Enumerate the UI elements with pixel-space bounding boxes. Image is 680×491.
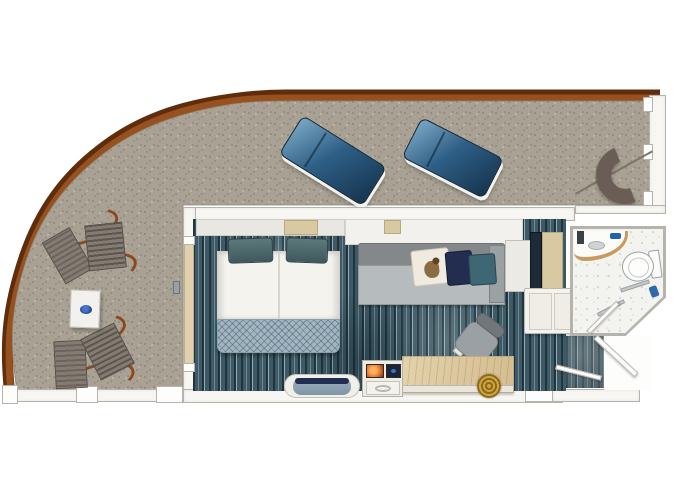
bed-runner-blanket xyxy=(217,319,340,353)
tray-item xyxy=(391,369,396,373)
balcony-side-table xyxy=(69,289,100,328)
dark-tray xyxy=(386,364,401,378)
drawer-handle xyxy=(375,385,391,392)
blue-towel xyxy=(610,233,621,239)
side-counter xyxy=(505,240,531,292)
sill-shelf xyxy=(384,220,401,234)
desk xyxy=(402,356,514,393)
tv-screen xyxy=(366,364,384,378)
minibar-cabinet xyxy=(362,360,403,397)
door-handle xyxy=(173,281,180,294)
headboard xyxy=(196,219,345,236)
balcony-sliding-door xyxy=(184,243,194,365)
floor-plan xyxy=(0,0,680,491)
mattress-seam xyxy=(278,252,280,322)
door-frame-cap xyxy=(183,363,195,372)
toilet xyxy=(620,247,664,285)
blue-plate xyxy=(80,305,92,314)
navy-cabinet xyxy=(530,232,542,290)
tall-cabinet-column xyxy=(542,232,563,290)
bench-loveseat xyxy=(284,374,360,398)
wall-pillar xyxy=(2,385,18,404)
wall-pillar xyxy=(643,97,653,112)
bench-back xyxy=(295,378,349,384)
toilet-seat xyxy=(627,256,651,279)
headboard-shelf xyxy=(284,220,318,235)
bed-pillow-left xyxy=(228,237,274,264)
wardrobe-door-left xyxy=(529,293,552,330)
right-top-wall xyxy=(575,205,666,214)
door-frame-cap xyxy=(183,236,195,245)
bed-pillow-right xyxy=(286,237,329,263)
sofa-pillow-teal xyxy=(468,253,497,286)
window-sill xyxy=(345,219,523,245)
gold-coil-object xyxy=(477,374,501,398)
minibar-drawer xyxy=(366,381,400,395)
sink-basin xyxy=(588,241,605,250)
wall-pillar xyxy=(156,386,183,403)
toiletries xyxy=(577,231,584,244)
